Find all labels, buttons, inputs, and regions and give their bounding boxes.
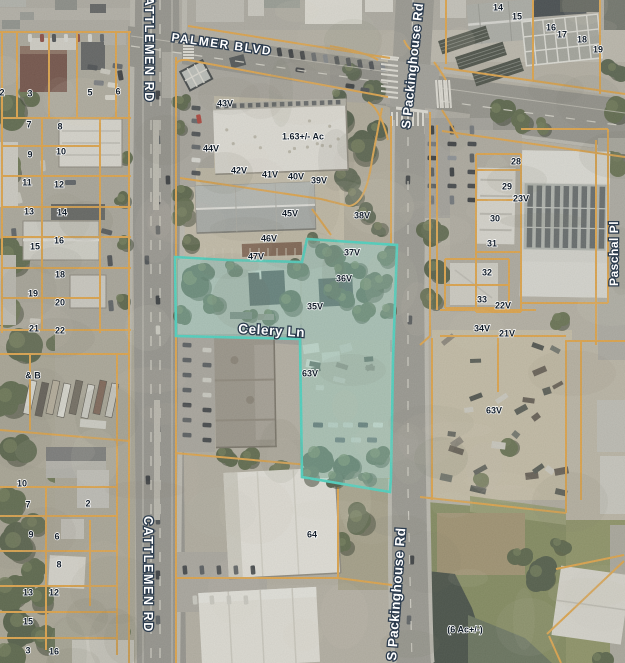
svg-text:21: 21 (29, 324, 39, 334)
svg-text:63V: 63V (302, 369, 318, 379)
svg-text:63V: 63V (486, 406, 502, 416)
svg-text:45V: 45V (282, 209, 298, 219)
svg-text:9: 9 (27, 150, 32, 160)
svg-text:40V: 40V (288, 172, 304, 182)
svg-text:42V: 42V (231, 166, 247, 176)
svg-text:16: 16 (546, 23, 556, 33)
svg-text:2: 2 (85, 499, 90, 509)
svg-text:6: 6 (115, 87, 120, 97)
svg-text:31: 31 (487, 239, 497, 249)
svg-text:10: 10 (56, 147, 66, 157)
svg-text:18: 18 (577, 35, 587, 45)
svg-text:13: 13 (24, 207, 34, 217)
svg-text:CATTLEMEN RD: CATTLEMEN RD (142, 0, 156, 103)
svg-text:33: 33 (477, 295, 487, 305)
svg-text:44V: 44V (203, 144, 219, 154)
svg-text:8: 8 (57, 122, 62, 132)
svg-text:13: 13 (23, 588, 33, 598)
svg-text:8: 8 (56, 560, 61, 570)
svg-text:18: 18 (55, 270, 65, 280)
svg-text:& B: & B (25, 371, 41, 381)
svg-text:22V: 22V (495, 301, 511, 311)
svg-text:9: 9 (28, 530, 33, 540)
svg-text:39V: 39V (311, 176, 327, 186)
svg-text:21V: 21V (499, 329, 515, 339)
svg-text:37V: 37V (344, 248, 360, 258)
svg-text:22: 22 (55, 326, 65, 336)
svg-text:(6 Ac+/-): (6 Ac+/-) (447, 625, 482, 635)
svg-text:5: 5 (87, 88, 92, 98)
svg-text:32: 32 (482, 268, 492, 278)
svg-text:3: 3 (27, 89, 32, 99)
svg-text:1.63+/- Ac: 1.63+/- Ac (282, 132, 324, 142)
svg-text:12: 12 (54, 180, 64, 190)
svg-text:3: 3 (25, 646, 30, 656)
svg-text:2: 2 (0, 88, 5, 98)
svg-text:29: 29 (502, 182, 512, 192)
svg-text:11: 11 (22, 178, 32, 188)
svg-text:CATTLEMEN RD: CATTLEMEN RD (141, 516, 155, 633)
svg-text:15: 15 (23, 617, 33, 627)
svg-text:19: 19 (28, 289, 38, 299)
svg-text:47V: 47V (248, 252, 264, 262)
svg-text:20: 20 (55, 298, 65, 308)
svg-text:14: 14 (493, 3, 503, 13)
svg-text:46V: 46V (261, 234, 277, 244)
svg-text:14: 14 (57, 208, 67, 218)
svg-text:17: 17 (557, 30, 567, 40)
svg-text:36V: 36V (336, 274, 352, 284)
svg-text:23V: 23V (513, 194, 529, 204)
svg-text:15: 15 (512, 12, 522, 22)
svg-text:43V: 43V (217, 99, 233, 109)
svg-text:30: 30 (490, 214, 500, 224)
svg-text:41V: 41V (262, 170, 278, 180)
svg-text:35V: 35V (307, 302, 323, 312)
svg-text:16: 16 (49, 647, 59, 657)
svg-text:16: 16 (54, 236, 64, 246)
svg-text:64: 64 (307, 530, 317, 540)
svg-text:6: 6 (54, 532, 59, 542)
svg-text:Paschal Pl: Paschal Pl (607, 221, 621, 286)
svg-text:7: 7 (26, 120, 31, 130)
svg-text:12: 12 (49, 588, 59, 598)
svg-text:10: 10 (17, 479, 27, 489)
svg-text:15: 15 (30, 242, 40, 252)
svg-text:28: 28 (511, 157, 521, 167)
svg-text:19: 19 (593, 45, 603, 55)
svg-text:34V: 34V (474, 324, 490, 334)
svg-text:7: 7 (25, 500, 30, 510)
svg-text:38V: 38V (354, 211, 370, 221)
